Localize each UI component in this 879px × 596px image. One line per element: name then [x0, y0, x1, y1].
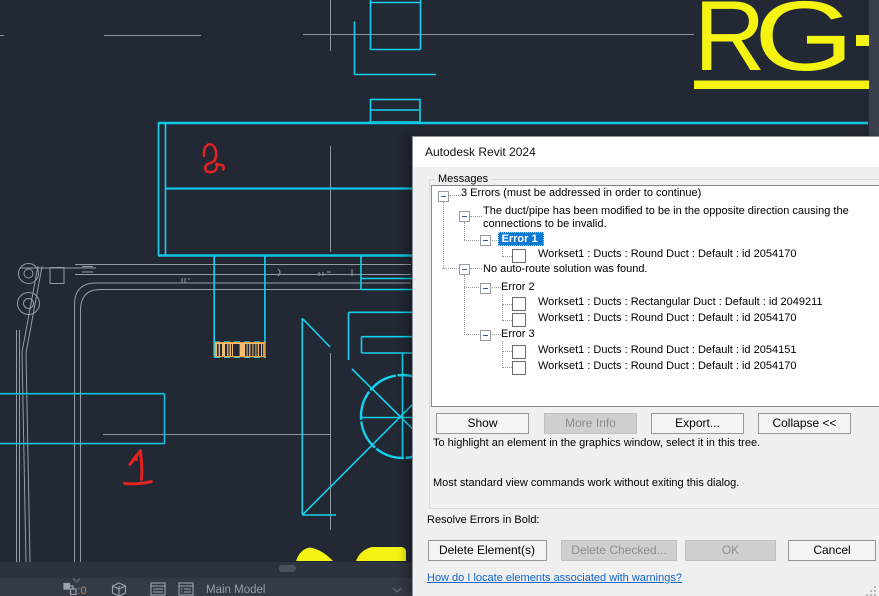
svg-text::0: :0: [78, 585, 87, 596]
svg-text:G: G: [754, 0, 854, 92]
svg-text:Main Model: Main Model: [206, 584, 265, 596]
